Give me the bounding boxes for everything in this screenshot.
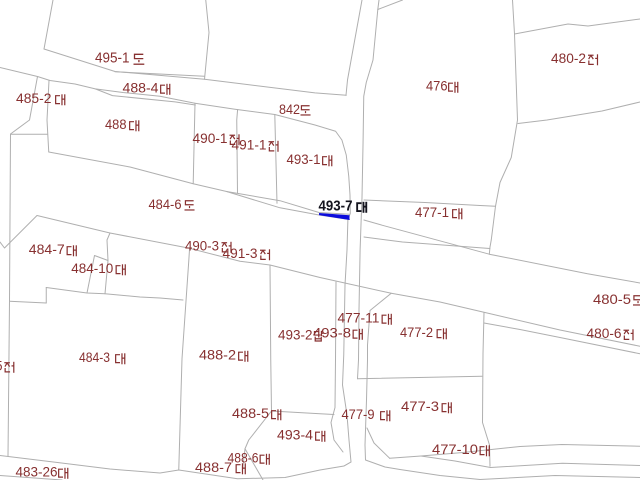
svg-text:493-7: 493-7 bbox=[319, 199, 353, 215]
svg-text:480-2: 480-2 bbox=[551, 51, 586, 66]
svg-text:488-7: 488-7 bbox=[195, 460, 232, 475]
svg-text:484-10: 484-10 bbox=[71, 261, 113, 276]
svg-text:488-2: 488-2 bbox=[199, 348, 236, 363]
svg-text:842: 842 bbox=[279, 102, 300, 117]
svg-text:477-11: 477-11 bbox=[338, 311, 380, 326]
svg-text:490-1: 490-1 bbox=[193, 131, 228, 146]
svg-text:484-6: 484-6 bbox=[149, 197, 182, 212]
svg-text:488: 488 bbox=[105, 117, 127, 132]
svg-text:488-5: 488-5 bbox=[232, 406, 269, 421]
svg-text:490-3: 490-3 bbox=[185, 239, 219, 254]
svg-text:5: 5 bbox=[0, 359, 3, 374]
svg-text:495-1: 495-1 bbox=[95, 50, 130, 67]
svg-text:477-9: 477-9 bbox=[342, 407, 375, 422]
svg-text:480-5: 480-5 bbox=[593, 292, 631, 307]
svg-text:491-3: 491-3 bbox=[223, 246, 258, 261]
svg-text:488-4: 488-4 bbox=[123, 81, 160, 96]
svg-text:483-26: 483-26 bbox=[16, 465, 58, 480]
svg-text:484-3: 484-3 bbox=[79, 350, 110, 365]
svg-text:493-1: 493-1 bbox=[287, 152, 321, 167]
svg-text:476: 476 bbox=[426, 79, 448, 94]
svg-text:488-6: 488-6 bbox=[228, 451, 259, 466]
svg-text:480-6: 480-6 bbox=[587, 326, 622, 341]
svg-text:477-3: 477-3 bbox=[401, 399, 439, 414]
svg-text:493-4: 493-4 bbox=[277, 428, 314, 443]
svg-text:493-8: 493-8 bbox=[313, 326, 351, 341]
svg-text:493-2: 493-2 bbox=[278, 328, 313, 343]
svg-text:491-1: 491-1 bbox=[232, 138, 267, 153]
svg-text:485-2: 485-2 bbox=[16, 91, 52, 106]
svg-text:484-7: 484-7 bbox=[29, 242, 65, 257]
svg-text:477-10: 477-10 bbox=[432, 442, 478, 457]
svg-text:477-1: 477-1 bbox=[415, 205, 449, 220]
svg-text:477-2: 477-2 bbox=[400, 325, 433, 340]
